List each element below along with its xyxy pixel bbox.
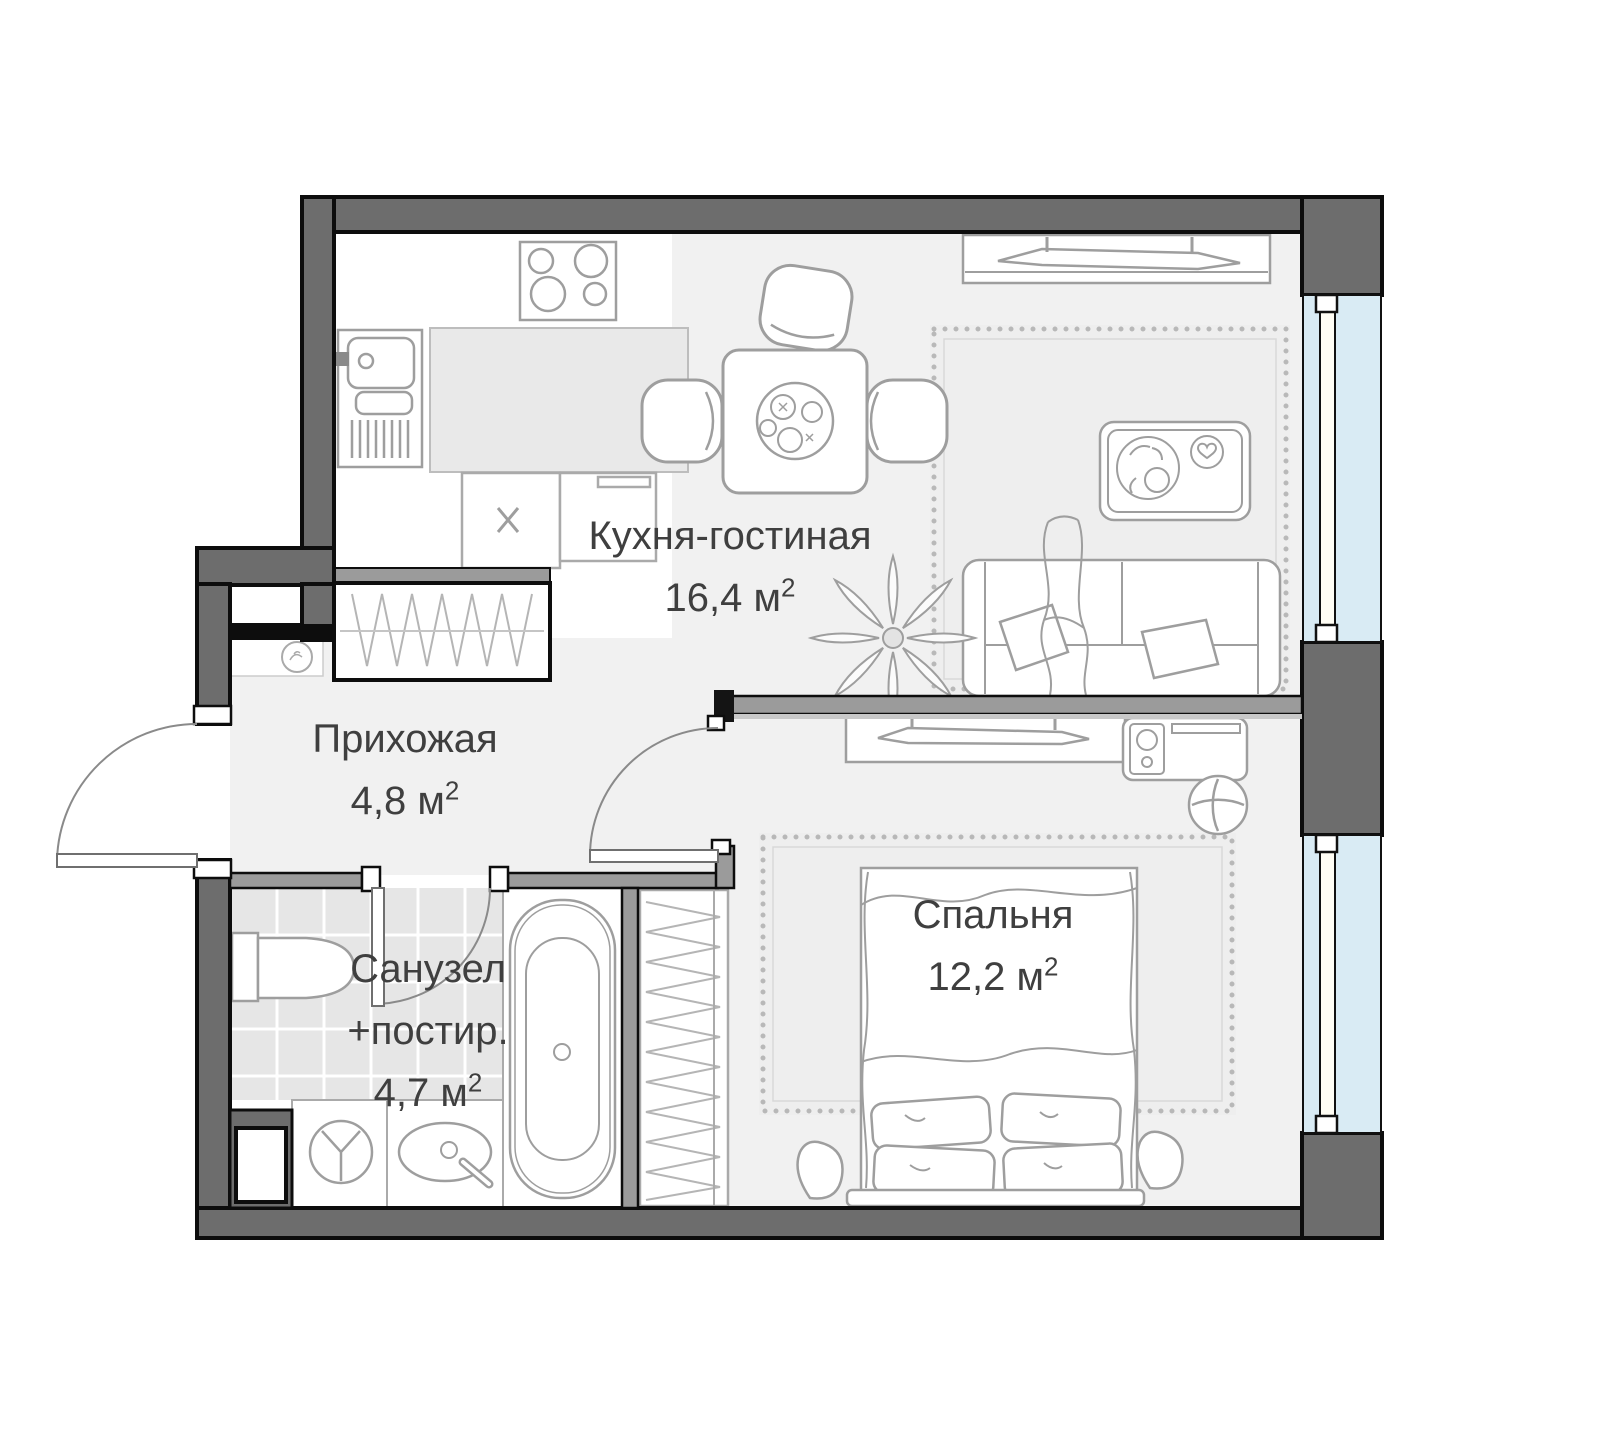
hallway-shelf xyxy=(231,638,323,676)
room-label-kitchen-living: Кухня-гостиная 16,4 м2 xyxy=(589,505,872,629)
room-area: 12,2 м2 xyxy=(913,946,1074,1008)
wall-left-lower xyxy=(197,860,230,1238)
chair-icon xyxy=(867,380,947,462)
wall-living-bedroom xyxy=(718,696,1302,714)
wall-pier-bottom xyxy=(1302,1133,1382,1238)
niche-icon xyxy=(236,1128,286,1202)
wall-bath-wardrobe xyxy=(622,888,638,1208)
room-name: Санузел xyxy=(347,938,508,1000)
room-name: Кухня-гостиная xyxy=(589,505,872,567)
niche-icon xyxy=(230,585,302,625)
tv-console-icon xyxy=(963,235,1270,283)
bathtub-icon xyxy=(503,888,622,1208)
room-area: 4,8 м2 xyxy=(312,770,497,832)
room-label-hallway: Прихожая 4,8 м2 xyxy=(312,708,497,832)
wall-top xyxy=(302,197,1382,232)
room-area: 4,7 м2 xyxy=(347,1062,508,1124)
stove-icon xyxy=(520,242,616,320)
room-name: Прихожая xyxy=(312,708,497,770)
wall-hall-bath-right xyxy=(508,873,718,888)
door-icon xyxy=(57,724,197,867)
wall-living-bedroom-trim xyxy=(733,714,1302,719)
closet-icon xyxy=(334,568,550,680)
room-area: 16,4 м2 xyxy=(589,567,872,629)
bed-footboard xyxy=(847,1190,1144,1206)
window-icon xyxy=(1303,295,1381,642)
chair-icon xyxy=(642,380,722,462)
room-name: Спальня xyxy=(913,884,1074,946)
floor-plan-drawing xyxy=(0,0,1600,1439)
chair-icon xyxy=(756,262,855,355)
floor-plan: Кухня-гостиная 16,4 м2 Прихожая 4,8 м2 С… xyxy=(0,0,1600,1439)
dresser-tv-icon xyxy=(846,716,1125,762)
room-label-bathroom: Санузел +постир. 4,7 м2 xyxy=(347,938,508,1124)
wall-bottom xyxy=(197,1208,1382,1238)
coffee-table-icon xyxy=(1100,422,1250,520)
room-name-line2: +постир. xyxy=(347,1000,508,1062)
wall-hall-bath-left xyxy=(230,873,362,888)
toilet-icon xyxy=(232,933,354,1001)
dining-table-icon xyxy=(723,350,867,493)
desk-icon xyxy=(1123,718,1247,780)
wall-left-jog xyxy=(197,548,334,585)
dishwasher-icon xyxy=(462,473,560,568)
window-icon xyxy=(1303,835,1381,1133)
stool-icon xyxy=(1189,776,1247,834)
wall-pier-top-right xyxy=(1302,197,1382,295)
wall-left-upper xyxy=(302,197,334,587)
wardrobe-icon xyxy=(640,890,728,1206)
kitchen-sink-icon xyxy=(333,330,422,467)
room-label-bedroom: Спальня 12,2 м2 xyxy=(913,884,1074,1008)
wall-pier-middle xyxy=(1302,642,1382,835)
wall-left-mid xyxy=(197,584,230,724)
